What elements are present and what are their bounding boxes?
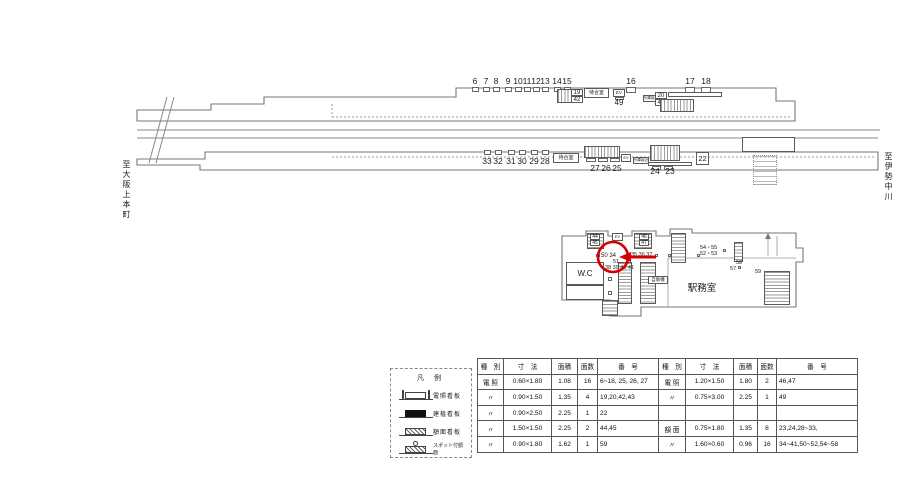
highlight-annotation [0,0,919,491]
highlight-arrow-head [619,252,631,262]
station-sign-location-map: 1942待合室EV列車接近2043待合室EV列車接近224445EV4647自販… [0,0,919,491]
